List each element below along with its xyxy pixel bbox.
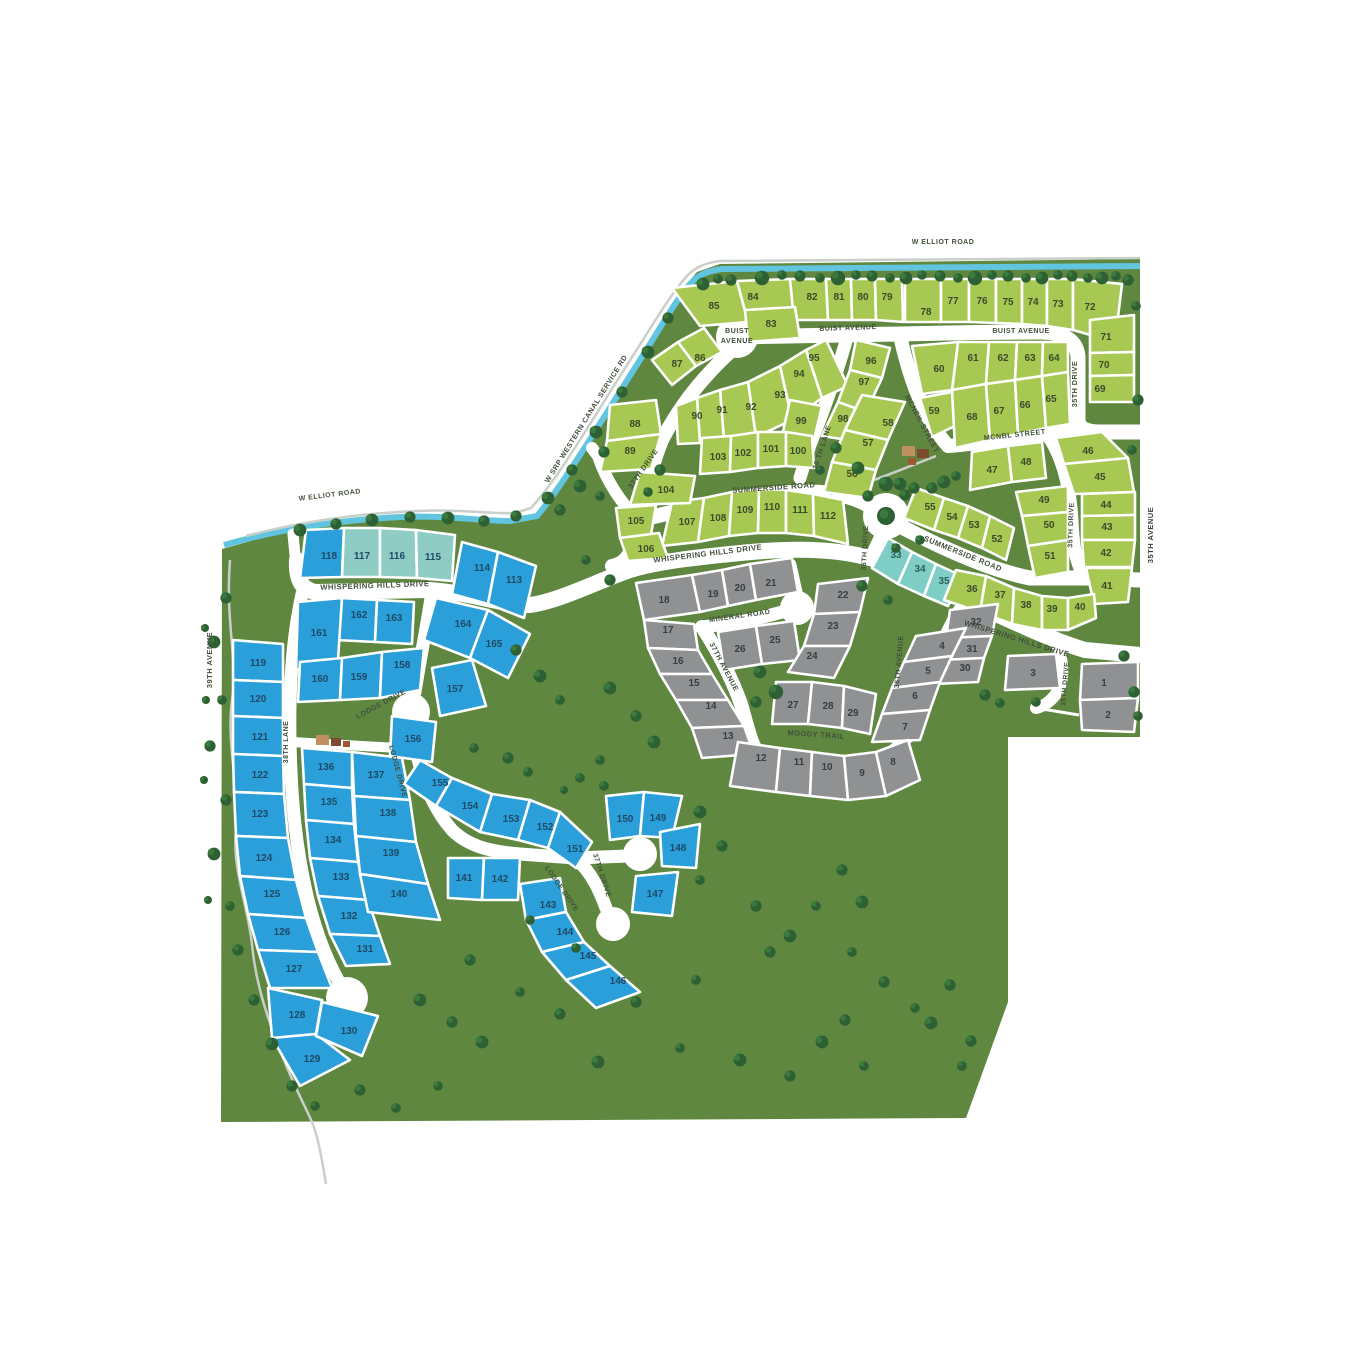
svg-text:10: 10 [821, 762, 833, 773]
svg-text:67: 67 [993, 406, 1005, 417]
svg-text:141: 141 [456, 873, 473, 884]
svg-text:110: 110 [764, 502, 781, 513]
svg-text:BUIST AVENUE: BUIST AVENUE [992, 328, 1049, 335]
svg-text:112: 112 [820, 511, 837, 522]
svg-text:114: 114 [474, 563, 491, 574]
svg-text:16: 16 [672, 656, 684, 667]
svg-text:118: 118 [321, 551, 338, 562]
svg-text:133: 133 [333, 872, 350, 883]
svg-text:58: 58 [882, 418, 894, 429]
svg-text:80: 80 [857, 292, 869, 303]
svg-text:44: 44 [1100, 500, 1112, 511]
svg-text:131: 131 [357, 944, 374, 955]
svg-text:68: 68 [966, 412, 978, 423]
svg-text:116: 116 [389, 551, 406, 562]
svg-text:55: 55 [924, 502, 936, 513]
svg-text:59: 59 [928, 406, 940, 417]
svg-text:78: 78 [920, 307, 932, 318]
svg-text:54: 54 [946, 512, 958, 523]
svg-text:39: 39 [1046, 604, 1058, 615]
svg-text:35: 35 [938, 576, 950, 587]
svg-text:27: 27 [787, 700, 799, 711]
svg-text:7: 7 [902, 722, 908, 733]
svg-text:17: 17 [662, 625, 674, 636]
svg-text:135: 135 [321, 797, 338, 808]
svg-text:6: 6 [912, 691, 918, 702]
svg-text:124: 124 [256, 853, 273, 864]
svg-text:AVENUE: AVENUE [721, 336, 753, 345]
svg-text:140: 140 [391, 889, 408, 900]
svg-text:149: 149 [650, 813, 667, 824]
svg-text:151: 151 [567, 844, 584, 855]
svg-text:91: 91 [716, 405, 728, 416]
svg-text:96: 96 [865, 356, 877, 367]
svg-text:24: 24 [806, 651, 818, 662]
svg-text:22: 22 [837, 590, 849, 601]
svg-text:48: 48 [1020, 457, 1032, 468]
svg-text:102: 102 [735, 448, 752, 459]
svg-text:84: 84 [747, 292, 759, 303]
svg-text:89: 89 [624, 446, 636, 457]
svg-text:23: 23 [827, 621, 839, 632]
svg-text:106: 106 [638, 544, 655, 555]
svg-text:11: 11 [794, 757, 805, 768]
svg-text:145: 145 [580, 951, 597, 962]
svg-text:85: 85 [708, 301, 720, 312]
svg-text:158: 158 [394, 660, 411, 671]
svg-text:50: 50 [1043, 520, 1055, 531]
svg-text:111: 111 [792, 505, 808, 516]
svg-text:49: 49 [1038, 495, 1050, 506]
svg-text:136: 136 [318, 762, 335, 773]
svg-text:86: 86 [694, 353, 706, 364]
svg-text:129: 129 [304, 1054, 321, 1065]
svg-text:134: 134 [325, 835, 342, 846]
svg-text:99: 99 [795, 416, 807, 427]
svg-text:143: 143 [540, 900, 557, 911]
svg-text:65: 65 [1045, 394, 1057, 405]
svg-text:W ELLIOT ROAD: W ELLIOT ROAD [912, 239, 975, 246]
svg-text:81: 81 [833, 292, 845, 303]
svg-text:107: 107 [679, 517, 696, 528]
svg-text:45: 45 [1094, 472, 1106, 483]
svg-text:109: 109 [737, 505, 754, 516]
svg-text:64: 64 [1048, 353, 1060, 364]
svg-text:100: 100 [790, 446, 807, 457]
svg-text:139: 139 [383, 848, 400, 859]
svg-text:36: 36 [966, 584, 978, 595]
svg-text:4: 4 [939, 641, 945, 652]
svg-text:164: 164 [455, 619, 472, 630]
svg-text:122: 122 [252, 770, 269, 781]
svg-text:73: 73 [1052, 299, 1064, 310]
svg-text:25: 25 [769, 635, 781, 646]
svg-text:13: 13 [722, 731, 734, 742]
svg-text:38: 38 [1020, 600, 1032, 611]
svg-text:15: 15 [688, 678, 700, 689]
svg-text:71: 71 [1100, 332, 1112, 343]
svg-text:160: 160 [312, 674, 329, 685]
svg-text:18: 18 [658, 595, 670, 606]
svg-text:83: 83 [765, 319, 777, 330]
svg-text:144: 144 [557, 927, 574, 938]
svg-text:69: 69 [1094, 384, 1106, 395]
svg-text:75: 75 [1002, 297, 1014, 308]
svg-text:34: 34 [914, 564, 926, 575]
svg-text:103: 103 [710, 452, 727, 463]
svg-text:66: 66 [1019, 400, 1031, 411]
svg-text:162: 162 [351, 610, 368, 621]
svg-text:121: 121 [252, 732, 269, 743]
svg-text:53: 53 [968, 520, 980, 531]
svg-text:93: 93 [774, 390, 786, 401]
svg-text:115: 115 [425, 552, 442, 563]
svg-text:113: 113 [506, 575, 523, 586]
svg-text:128: 128 [289, 1010, 306, 1021]
svg-text:61: 61 [967, 353, 979, 364]
svg-text:70: 70 [1098, 360, 1110, 371]
svg-text:52: 52 [991, 534, 1003, 545]
svg-text:30: 30 [959, 663, 971, 674]
svg-text:138: 138 [380, 808, 397, 819]
svg-text:1: 1 [1101, 678, 1107, 689]
svg-text:117: 117 [354, 551, 371, 562]
svg-text:19: 19 [707, 589, 719, 600]
svg-text:108: 108 [710, 513, 727, 524]
svg-text:35TH AVENUE: 35TH AVENUE [1146, 507, 1155, 563]
svg-text:101: 101 [763, 444, 780, 455]
svg-text:74: 74 [1027, 297, 1039, 308]
svg-text:159: 159 [351, 672, 368, 683]
svg-text:142: 142 [492, 874, 509, 885]
svg-text:39TH AVENUE: 39TH AVENUE [205, 632, 214, 688]
svg-text:37: 37 [994, 590, 1006, 601]
svg-text:104: 104 [658, 485, 675, 496]
svg-text:153: 153 [503, 814, 520, 825]
svg-text:127: 127 [286, 964, 303, 975]
svg-text:132: 132 [341, 911, 358, 922]
svg-text:120: 120 [250, 694, 267, 705]
svg-text:28: 28 [822, 701, 834, 712]
svg-text:14: 14 [705, 701, 717, 712]
svg-text:150: 150 [617, 814, 634, 825]
svg-text:76: 76 [976, 296, 988, 307]
svg-text:60: 60 [933, 364, 945, 375]
svg-text:57: 57 [862, 438, 874, 449]
svg-text:29: 29 [847, 708, 859, 719]
svg-text:94: 94 [793, 369, 805, 380]
svg-text:51: 51 [1044, 551, 1056, 562]
svg-text:26: 26 [734, 644, 746, 655]
svg-text:42: 42 [1100, 548, 1112, 559]
svg-text:125: 125 [264, 889, 281, 900]
svg-text:20: 20 [734, 583, 746, 594]
svg-text:165: 165 [486, 639, 503, 650]
svg-text:21: 21 [765, 578, 777, 589]
svg-text:147: 147 [647, 889, 664, 900]
svg-text:130: 130 [341, 1026, 358, 1037]
svg-text:5: 5 [925, 666, 931, 677]
svg-text:77: 77 [947, 296, 959, 307]
svg-text:156: 156 [405, 734, 422, 745]
svg-text:123: 123 [252, 809, 269, 820]
svg-text:82: 82 [806, 292, 818, 303]
svg-text:97: 97 [858, 377, 870, 388]
svg-text:152: 152 [537, 822, 554, 833]
svg-text:87: 87 [671, 359, 683, 370]
svg-text:63: 63 [1024, 353, 1036, 364]
svg-text:155: 155 [432, 778, 449, 789]
svg-text:31: 31 [966, 644, 978, 655]
svg-text:38TH LANE: 38TH LANE [283, 721, 290, 764]
svg-text:157: 157 [447, 684, 464, 695]
svg-text:146: 146 [610, 976, 627, 987]
svg-text:46: 46 [1082, 446, 1094, 457]
svg-text:154: 154 [462, 801, 479, 812]
svg-text:43: 43 [1101, 522, 1113, 533]
svg-text:8: 8 [890, 757, 896, 768]
svg-text:95: 95 [808, 353, 820, 364]
svg-text:88: 88 [629, 419, 641, 430]
svg-text:47: 47 [986, 465, 998, 476]
svg-text:41: 41 [1101, 581, 1113, 592]
svg-text:2: 2 [1105, 710, 1111, 721]
svg-text:9: 9 [859, 768, 865, 779]
svg-text:62: 62 [997, 353, 1009, 364]
svg-text:163: 163 [386, 613, 403, 624]
svg-text:92: 92 [745, 402, 757, 413]
svg-text:105: 105 [628, 516, 645, 527]
svg-text:90: 90 [691, 411, 703, 422]
svg-text:12: 12 [755, 753, 767, 764]
svg-text:79: 79 [881, 292, 893, 303]
svg-text:148: 148 [670, 843, 687, 854]
svg-text:40: 40 [1074, 602, 1086, 613]
svg-text:137: 137 [368, 770, 385, 781]
svg-text:BUIST: BUIST [725, 326, 749, 335]
svg-text:161: 161 [311, 628, 328, 639]
svg-text:3: 3 [1030, 668, 1036, 679]
svg-text:35TH DRIVE: 35TH DRIVE [1070, 361, 1079, 408]
svg-text:119: 119 [250, 658, 267, 669]
svg-text:72: 72 [1084, 302, 1096, 313]
svg-text:126: 126 [274, 927, 291, 938]
